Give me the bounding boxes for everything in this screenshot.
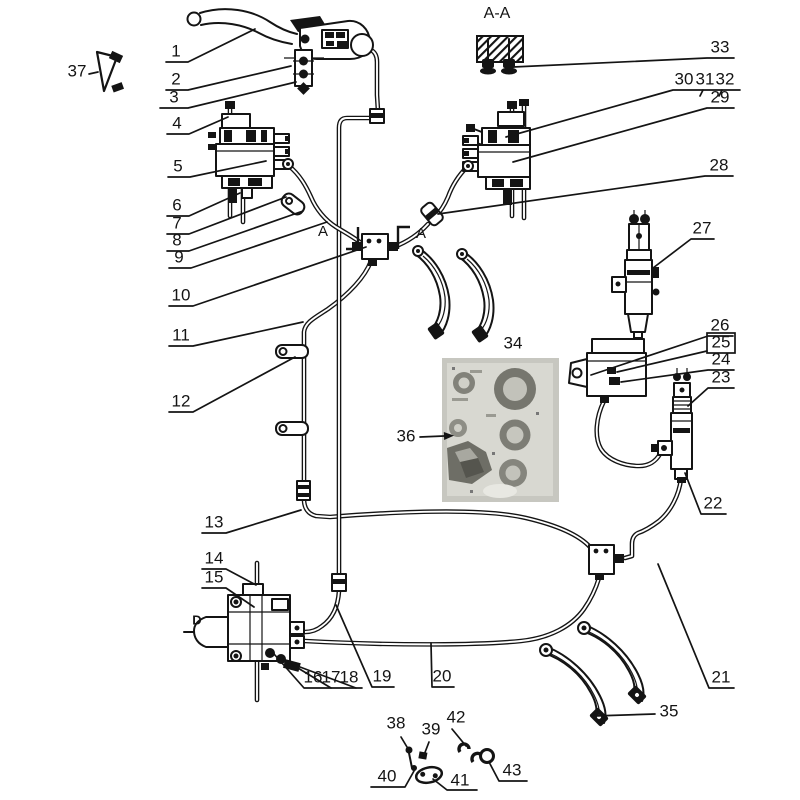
callout-label-5: 5 [173,156,182,175]
clip-41 [415,765,444,785]
callout-22: 22 [685,473,726,514]
pipe-clamp-upper [276,345,308,358]
washer-43 [481,750,494,763]
callout-label-3: 3 [169,87,178,106]
callout-42: 42 [447,707,466,746]
callout-label-13: 13 [205,512,224,531]
callout-label-15: 15 [205,567,224,586]
callout-38: 38 [387,713,410,752]
callout-34: 34 [504,333,523,352]
small-fasteners [406,744,494,785]
callout-2: 2 [166,66,291,90]
retaining-clip [97,51,124,93]
callout-label-28: 28 [710,155,729,174]
callout-label-27: 27 [693,218,712,237]
callout-label-6: 6 [172,195,181,214]
callout-label-30: 30 [675,69,694,88]
brake-fluid-reservoir [569,339,646,403]
callout-40: 40 [371,766,414,787]
callout-label-4: 4 [172,113,181,132]
label-section-a-left: A [318,223,328,240]
rear-hose-b [578,622,647,705]
callout-layer: 1234567891011121314151617181920212223242… [68,5,740,790]
callout-label-42: 42 [447,707,466,726]
callout-10: 10 [169,247,366,306]
rear-hose-pair [540,622,647,727]
callout-label-34: 34 [504,333,523,352]
callout-27: 27 [653,218,714,268]
callout-label-40: 40 [378,766,397,785]
callout-label-9: 9 [174,247,183,266]
pipe-fitting-lever-line [370,109,384,123]
front-left-brake-caliper [208,101,293,222]
rear-master-cylinder [612,210,660,338]
rear-tee-junction [589,545,624,580]
callout-20: 20 [431,643,454,687]
callout-label-14: 14 [205,548,224,567]
callout-label-31: 31 [696,69,715,88]
callout-label-19: 19 [373,666,392,685]
snap-ring-42a [459,744,469,752]
callout-label-38: 38 [387,713,406,732]
callout-label-20: 20 [433,666,452,685]
callout-label-37: 37 [68,61,87,80]
callout-21: 21 [658,564,734,688]
washer-39 [418,751,427,759]
front-hose-pair [413,246,494,343]
callout-4: 4 [167,113,228,134]
pipe-sleeve-rear-hose [332,574,346,591]
callout-39: 39 [422,719,441,755]
callout-9: 9 [169,222,327,268]
callout-33: 33 [513,37,734,67]
hose-guide-8 [279,191,307,217]
callout-label-22: 22 [704,493,723,512]
callout-37: 37 [68,61,98,80]
brake-system-parts-diagram: 1234567891011121314151617181920212223242… [0,0,800,800]
callout-11: 11 [169,322,303,346]
label-section-aa: A-A [484,5,511,22]
washer-40 [411,765,417,771]
rear-brake-caliper-assembly [184,563,304,700]
callout-label-1: 1 [171,41,180,60]
callout-label-32: 32 [716,69,735,88]
front-hose-b [457,249,494,343]
callout-label-43: 43 [503,760,522,779]
callout-label-41: 41 [451,770,470,789]
front-right-brake-caliper [463,99,530,218]
callout-label-35: 35 [660,701,679,720]
callout-12: 12 [169,357,295,412]
callout-label-2: 2 [171,69,180,88]
callout-29: 29 [513,87,734,162]
callout-label-21: 21 [712,667,731,686]
diagram-canvas: 1234567891011121314151617181920212223242… [0,0,800,800]
front-hose-a [413,246,450,340]
callout-label-39: 39 [422,719,441,738]
callout-13: 13 [202,510,301,533]
pedal-master-cylinder [651,368,692,483]
rear-hose-a [540,644,609,727]
callout-label-11: 11 [172,325,190,344]
label-axis-d: D [192,612,201,627]
callout-label-26: 26 [711,315,730,334]
callout-label-10: 10 [172,285,191,304]
callout-label-33: 33 [711,37,730,56]
callout-label-12: 12 [172,391,191,410]
repair-kit-photo [442,358,559,502]
label-section-a-right: A [416,225,426,242]
pipe-connector-13 [297,481,310,500]
callout-label-36: 36 [397,426,416,445]
section-aa-detail [477,36,523,75]
callout-23: 23 [688,367,734,406]
callout-43: 43 [489,760,527,781]
pipe-clamp-lower [276,422,308,435]
callout-label-18: 18 [340,667,359,686]
front-brake-lever-assembly [188,9,374,95]
callout-1: 1 [166,29,255,62]
